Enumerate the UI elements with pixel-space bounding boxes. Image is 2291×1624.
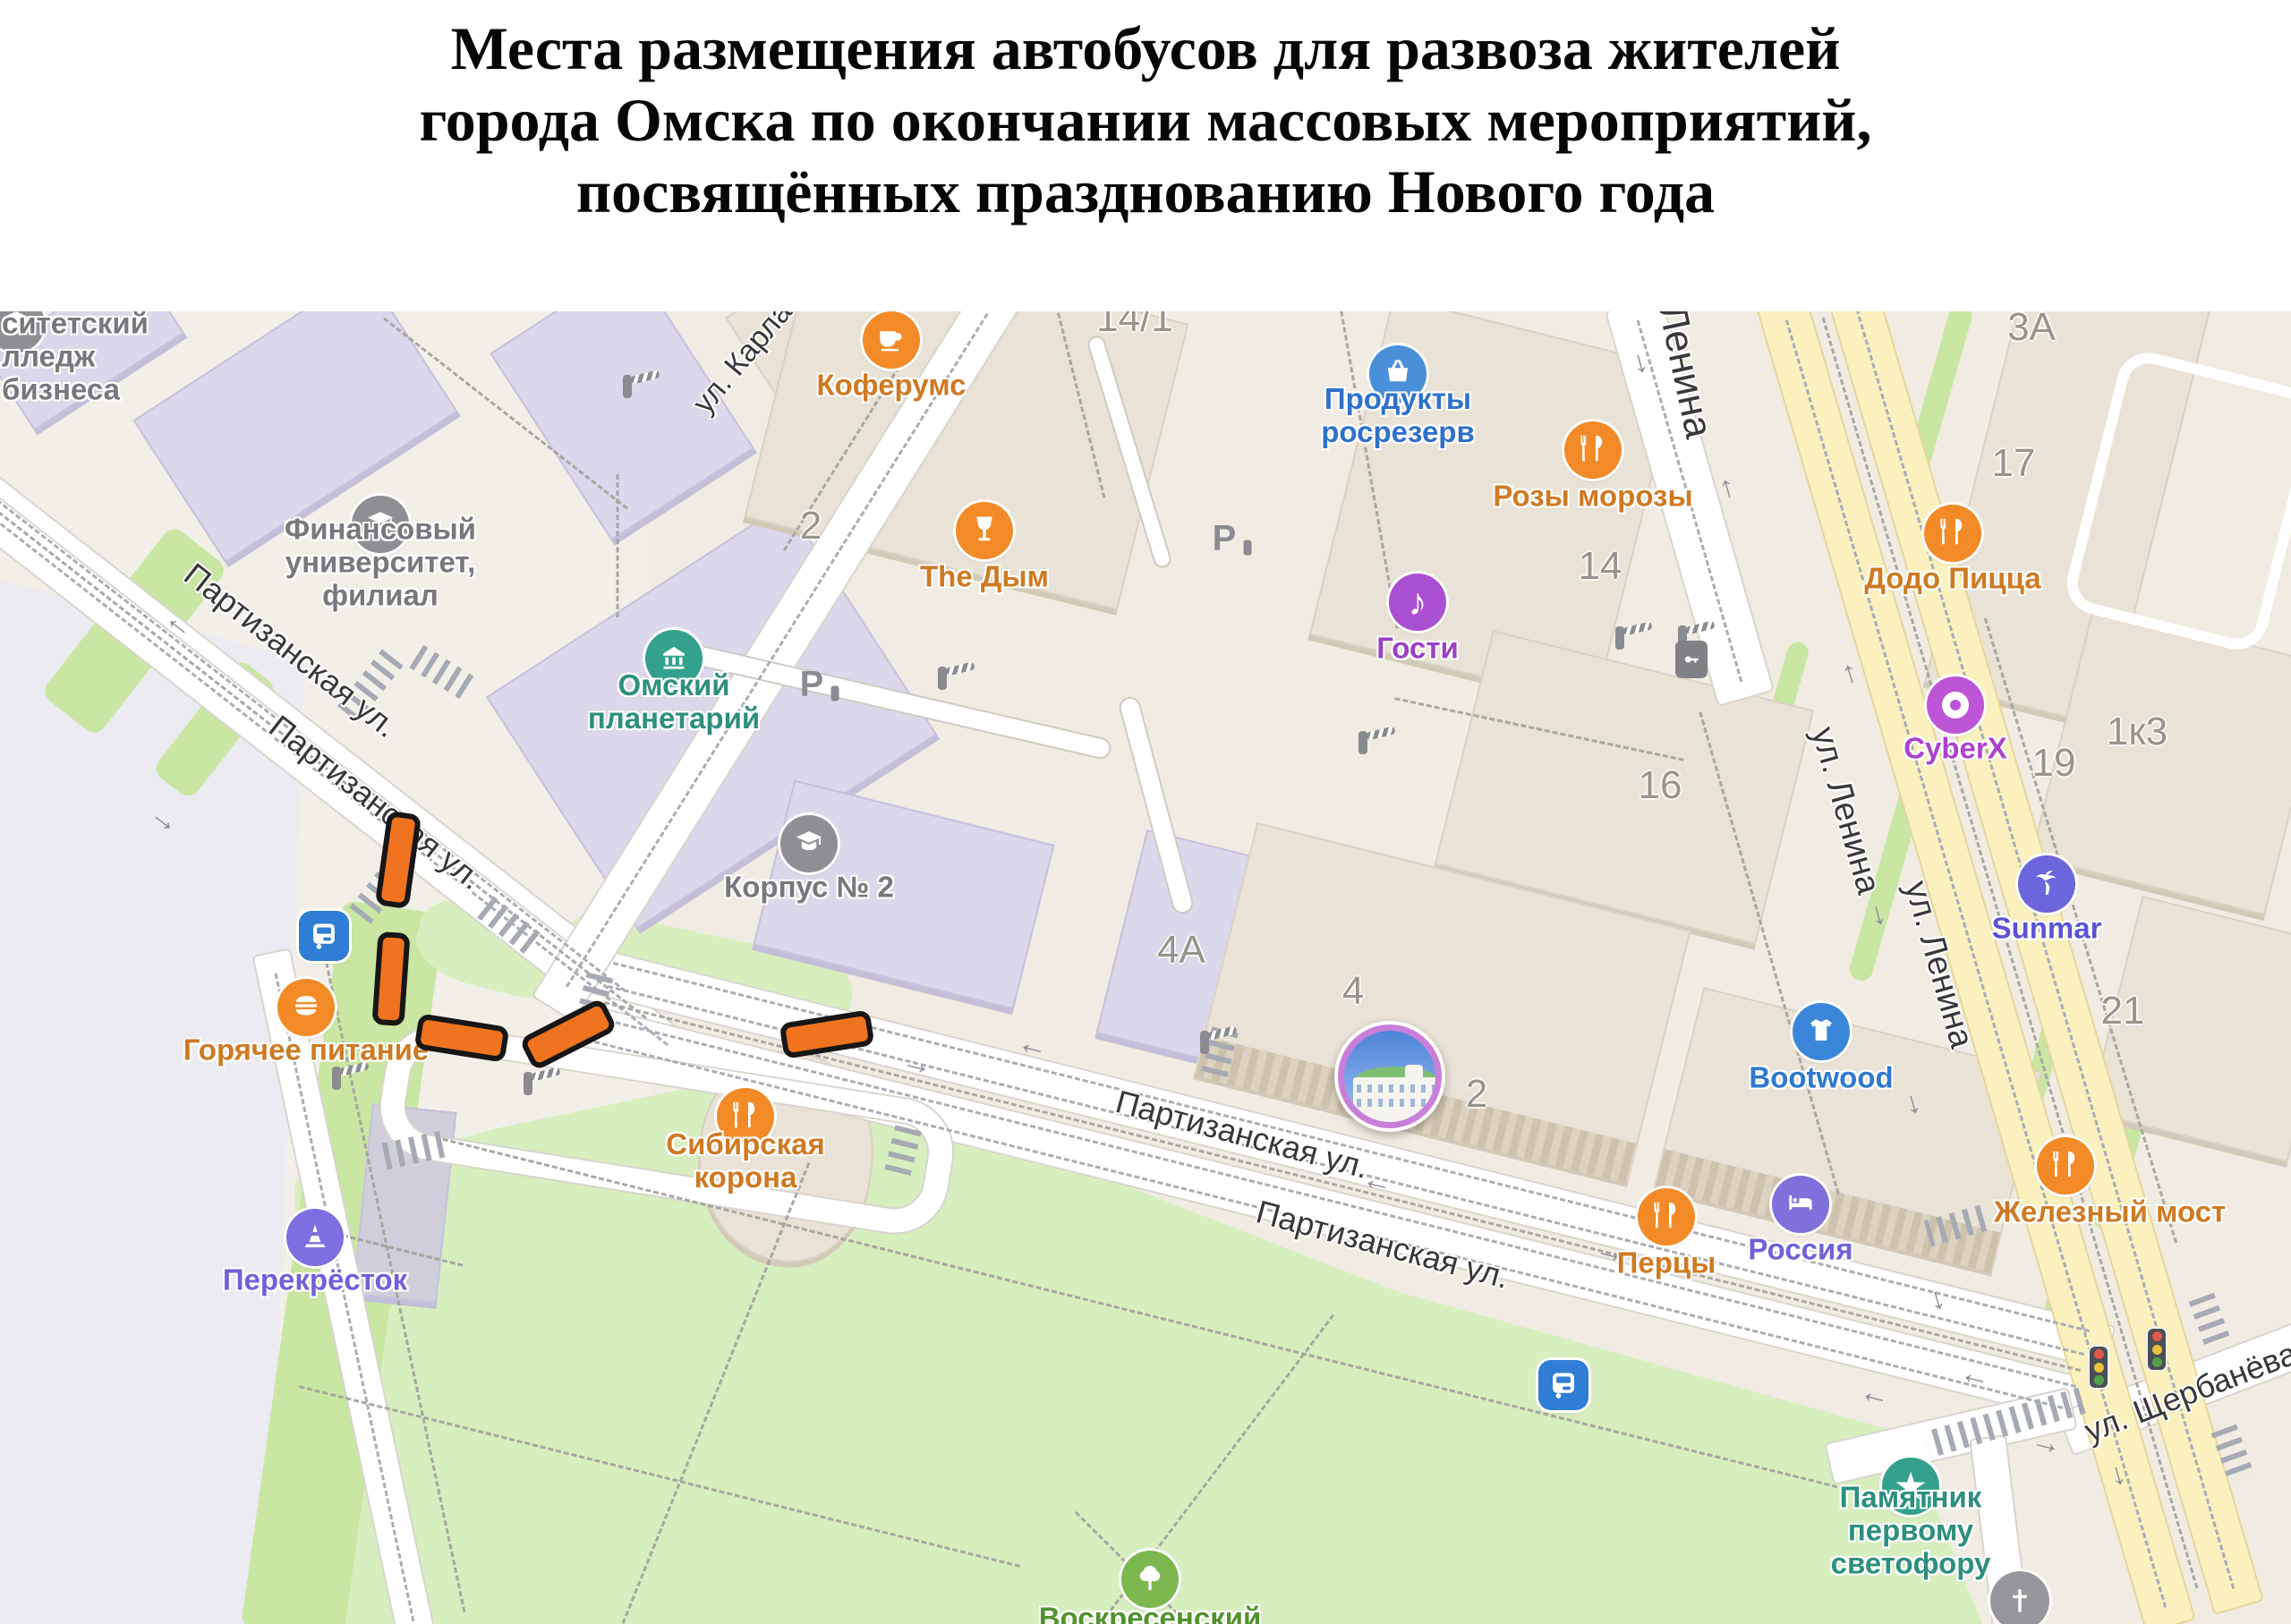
poi-label: Горячее питание <box>183 1033 430 1067</box>
restaurant-icon <box>1936 514 1970 553</box>
poi-label: Продуктыросрезерв <box>1321 382 1475 448</box>
poi-dodo-pizza[interactable] <box>1924 505 1981 562</box>
church-icon <box>1990 1571 2049 1624</box>
barrier-icon <box>1615 625 1655 651</box>
poi-label: Перекрёсток <box>223 1263 407 1297</box>
traffic-light-icon <box>2088 1345 2109 1390</box>
poi-label: Железный мост <box>1994 1195 2226 1229</box>
building-number: 16 <box>1639 763 1682 808</box>
photo-building-tower <box>1405 1065 1423 1079</box>
building-number: 21 <box>2101 989 2145 1033</box>
transport-stop-icon[interactable] <box>1538 1360 1588 1410</box>
poi-label: ситетскийлледжбизнеса <box>2 311 149 406</box>
poi-label: Омскийпланетарий <box>588 668 760 735</box>
poi-label: CyberX <box>1903 732 2007 765</box>
parking-meter-icon <box>831 686 839 701</box>
crosswalk <box>409 645 476 701</box>
music-icon: ♪ <box>1409 581 1427 624</box>
building-number: 2 <box>1466 1072 1487 1117</box>
poi-voskresensky[interactable] <box>1121 1551 1179 1608</box>
poi-label: Сибирскаякорона <box>666 1127 824 1194</box>
building-number: 3А <box>2007 311 2056 350</box>
boundary-dash <box>617 474 619 617</box>
building-number: 2 <box>800 504 822 548</box>
poi-label: Корпус № 2 <box>724 871 894 904</box>
gradcap-icon <box>792 825 826 863</box>
page-title: Места размещения автобусов для развоза ж… <box>0 0 2291 311</box>
building-number: 4А <box>1157 928 1205 973</box>
title-line-3: посвящённых празднованию Нового года <box>0 156 2291 227</box>
building-number: 1к3 <box>2107 710 2168 754</box>
palm-icon <box>2030 865 2064 904</box>
poi-label: Розы морозы <box>1493 480 1692 513</box>
poi-label: Финансовыйуниверситет,филиал <box>285 513 476 612</box>
barrier-icon <box>1358 729 1398 756</box>
poi-the-dym[interactable] <box>956 502 1013 559</box>
poi-perekrestok[interactable] <box>286 1209 344 1266</box>
poi-label: Коферумс <box>816 369 966 402</box>
title-line-2: города Омска по окончании массовых мероп… <box>0 84 2291 156</box>
burger-icon <box>289 989 323 1027</box>
building-number: 19 <box>2032 741 2076 786</box>
poi-rossiya[interactable] <box>1772 1176 1829 1233</box>
poi-korpus-2[interactable] <box>780 815 838 872</box>
poi-label: Воскресенский <box>1039 1602 1262 1624</box>
poi-goryachee-pitanie[interactable] <box>277 979 335 1036</box>
tree-icon <box>1133 1560 1167 1599</box>
poi-cyberx[interactable] <box>1927 676 1984 734</box>
poi-gosti[interactable]: ♪ <box>1389 574 1446 631</box>
poi-pertsy[interactable] <box>1638 1188 1695 1246</box>
photo-marker[interactable] <box>1334 1021 1445 1132</box>
donut-icon <box>1942 692 1969 718</box>
barrier-icon <box>524 1070 563 1097</box>
poi-label: Россия <box>1748 1233 1852 1266</box>
poi-label: The Дым <box>920 560 1049 593</box>
photo-building-windows <box>1357 1084 1435 1093</box>
building-number: 17 <box>1992 441 2036 486</box>
tshirt-icon <box>1804 1013 1838 1051</box>
title-line-1: Места размещения автобусов для развоза ж… <box>0 13 2291 84</box>
parking-icon: P <box>800 665 824 705</box>
poi-label: Гости <box>1376 632 1459 665</box>
bar-icon <box>967 512 1001 550</box>
cone-icon <box>298 1219 332 1257</box>
poi-label: Памятникпервомусветофору <box>1831 1481 1991 1580</box>
parking-icon: P <box>1213 519 1237 559</box>
photo-building <box>1353 1077 1439 1122</box>
key-icon <box>1675 641 1708 678</box>
barrier-icon <box>332 1065 371 1092</box>
traffic-light-icon <box>2146 1327 2168 1372</box>
barrier-icon <box>623 373 662 400</box>
bus-parking-marker <box>371 931 410 1026</box>
poi-zhelezny-most[interactable] <box>2037 1137 2094 1195</box>
poi-bootwood[interactable] <box>1793 1003 1850 1060</box>
restaurant-icon <box>1576 431 1610 470</box>
bed-icon <box>1784 1186 1818 1224</box>
restaurant-icon <box>2048 1147 2082 1186</box>
barrier-icon <box>1200 1029 1239 1056</box>
building-number: 4 <box>1342 969 1364 1014</box>
map-canvas[interactable]: →→→→→→→→→→→→→→→→Партизанская ул.Партизан… <box>0 311 2291 1624</box>
poi-label: Sunmar <box>1992 912 2102 945</box>
photo-building-windows <box>1357 1099 1435 1107</box>
restaurant-icon <box>1649 1198 1683 1237</box>
poi-sunmar[interactable] <box>2018 855 2075 913</box>
poi-label: Додо Пицца <box>1864 562 2040 595</box>
cafe-icon <box>874 321 908 360</box>
poi-koferums[interactable] <box>863 311 920 369</box>
building-number: 14/1 <box>1096 311 1173 341</box>
poi-rozy-morozy[interactable] <box>1564 421 1622 479</box>
photo-marker-ring <box>1338 1025 1442 1128</box>
poi-label: Bootwood <box>1749 1061 1893 1094</box>
page: Места размещения автобусов для развоза ж… <box>0 0 2291 1624</box>
building-number: 14 <box>1579 544 1622 589</box>
parking-meter-icon <box>1244 540 1252 556</box>
transport-stop-icon[interactable] <box>299 911 349 961</box>
barrier-icon <box>938 665 977 692</box>
poi-label: Перцы <box>1617 1246 1716 1280</box>
